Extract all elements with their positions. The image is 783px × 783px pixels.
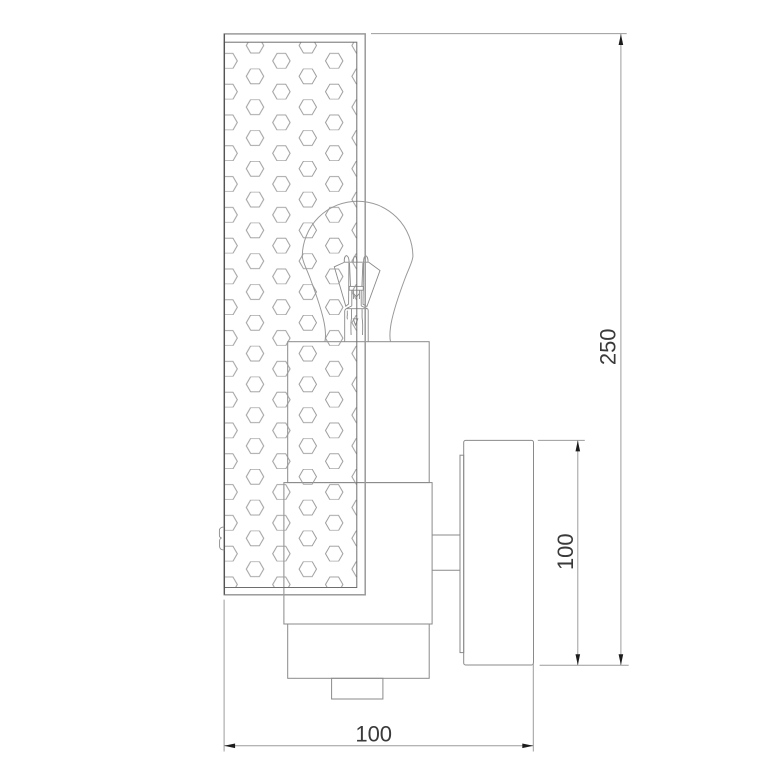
svg-text:100: 100 <box>355 722 392 747</box>
svg-text:250: 250 <box>595 328 620 365</box>
svg-text:100: 100 <box>553 533 578 570</box>
